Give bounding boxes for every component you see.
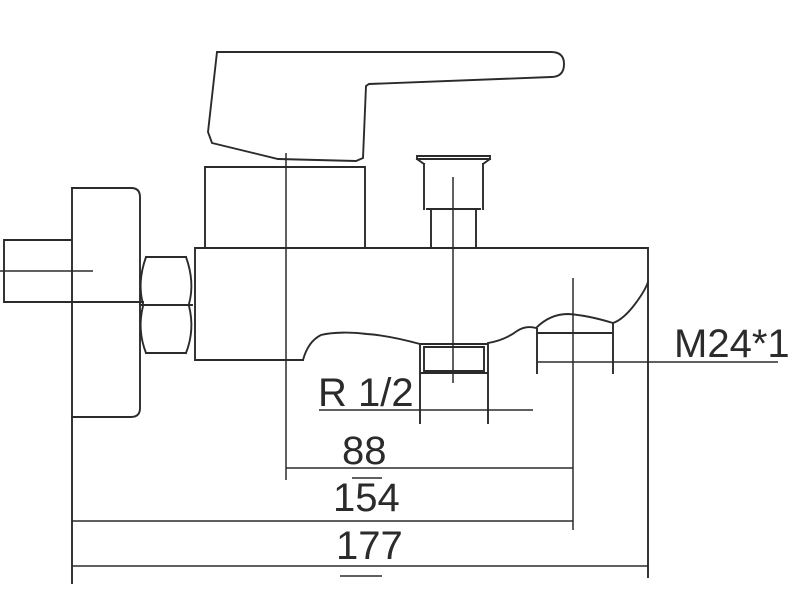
cartridge-escutcheon-outline: [205, 167, 365, 248]
shower-thread-label: M24*1: [674, 322, 790, 366]
spout-thread-label: R 1/2: [318, 371, 414, 415]
lever-handle-outline: [208, 52, 564, 161]
dimension-text-177: 177: [336, 524, 403, 568]
dimension-text-88: 88: [342, 429, 387, 473]
hex-nut-outline: [140, 257, 192, 353]
technical-drawing-page: M24*1 R 1/2 88 154 177: [0, 0, 800, 600]
spout-thread-boss-outline: [420, 344, 488, 423]
dimension-text-154: 154: [333, 476, 400, 520]
faucet-technical-drawing: M24*1 R 1/2 88 154 177: [0, 0, 800, 600]
shower-thread-boss-outline: [537, 323, 613, 373]
